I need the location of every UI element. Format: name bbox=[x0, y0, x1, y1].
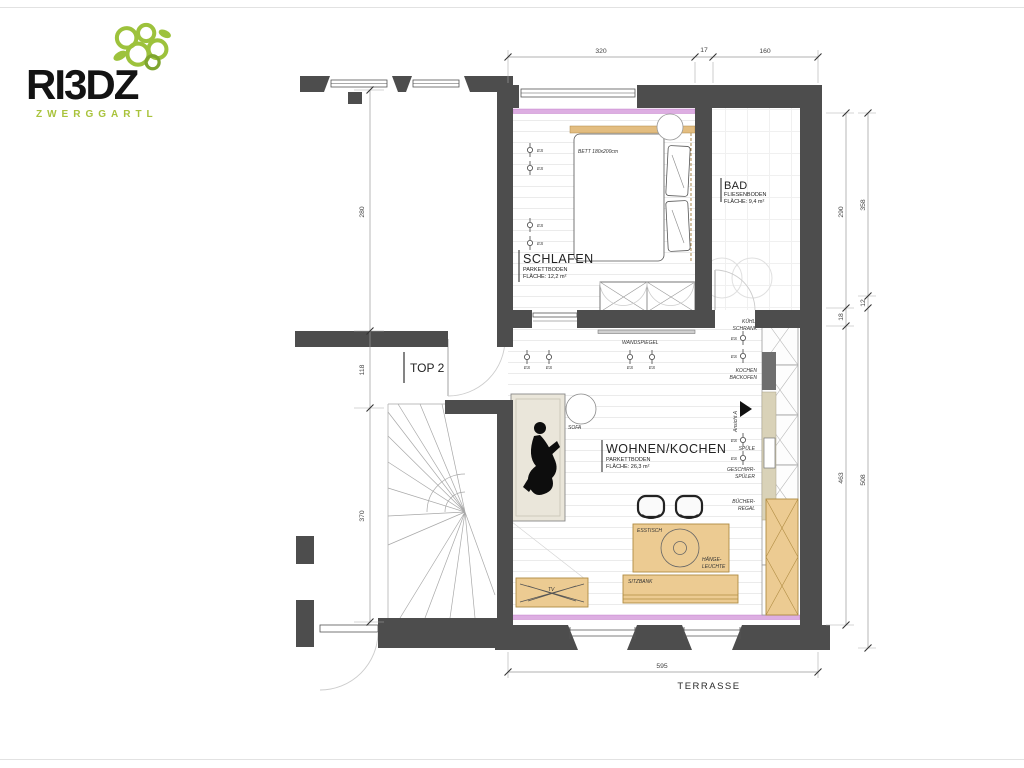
hanging-lamp-label-2: LEUCHTE bbox=[702, 564, 726, 570]
oven-label-2: BACKOFEN bbox=[729, 375, 757, 381]
dim-top-3: 160 bbox=[759, 48, 771, 55]
schlafen-name: SCHLAFEN bbox=[523, 252, 594, 266]
svg-text:ES: ES bbox=[546, 365, 553, 370]
svg-text:ES: ES bbox=[537, 148, 544, 153]
dim-right-inner-2: 18 bbox=[838, 313, 845, 321]
svg-text:ES: ES bbox=[524, 365, 531, 370]
dim-top-1: 320 bbox=[595, 48, 607, 55]
dim-right-inner-3: 463 bbox=[838, 472, 845, 484]
fridge-label-2: SCHRANK bbox=[733, 326, 758, 332]
svg-text:ES: ES bbox=[731, 438, 738, 443]
svg-text:ES: ES bbox=[731, 336, 738, 341]
dishwasher-label-2: SPÜLER bbox=[735, 473, 755, 480]
bookshelf-label-1: BÜCHER- bbox=[732, 498, 755, 505]
svg-text:ES: ES bbox=[537, 223, 544, 228]
schlafen-floor: PARKETTBODEN bbox=[523, 267, 568, 273]
staircase bbox=[388, 404, 495, 618]
sink-label: SPÜLE bbox=[739, 445, 756, 452]
tv-label: TV bbox=[548, 587, 555, 593]
terrasse-label: TERRASSE bbox=[677, 681, 740, 692]
bed-label: BETT 180x200cm bbox=[578, 149, 618, 155]
bench-label: SITZBANK bbox=[628, 579, 653, 585]
dim-right-outer-2: 12 bbox=[860, 299, 867, 307]
wohnen-area: FLÄCHE: 26,3 m² bbox=[606, 463, 650, 470]
dim-left-3: 370 bbox=[359, 510, 366, 522]
wall-mirror-label: WANDSPIEGEL bbox=[622, 340, 659, 346]
ceiling-lamp-icon bbox=[657, 114, 683, 140]
wardrobe bbox=[600, 282, 695, 312]
kitchen-unit-strip bbox=[762, 315, 798, 615]
oven-icon bbox=[762, 352, 776, 390]
bed: BETT 180x200cm bbox=[570, 114, 695, 262]
dim-left-1: 280 bbox=[359, 206, 366, 218]
floorplan-page: RI3DZ ZWERGGARTL bbox=[0, 0, 1024, 768]
bad-floor: FLIESENBODEN bbox=[724, 192, 767, 198]
svg-text:ES: ES bbox=[627, 365, 634, 370]
svg-text:ES: ES bbox=[537, 241, 544, 246]
svg-text:ES: ES bbox=[731, 354, 738, 359]
dining-table-label: ESSTISCH bbox=[637, 528, 662, 534]
svg-text:ES: ES bbox=[731, 456, 738, 461]
hanging-lamp-label-1: HÄNGE- bbox=[702, 556, 722, 563]
bad-name: BAD bbox=[724, 180, 748, 192]
dishwasher-label-1: GESCHIRR- bbox=[727, 467, 755, 473]
unit-label: TOP 2 bbox=[410, 361, 445, 375]
bookshelf-label-2: REGAL bbox=[738, 506, 755, 512]
section-marker-label: Ansicht A bbox=[733, 410, 739, 433]
floor-plan-drawing: BETT 180x200cm WANDSPIEGEL SOFA bbox=[0, 0, 1024, 768]
dim-top-2: 17 bbox=[700, 47, 708, 54]
svg-text:ES: ES bbox=[537, 166, 544, 171]
svg-text:ES: ES bbox=[649, 365, 656, 370]
bad-area: FLÄCHE: 9,4 m² bbox=[724, 198, 765, 205]
oven-label-1: KOCHEN bbox=[736, 368, 758, 374]
schlafen-area: FLÄCHE: 12,2 m² bbox=[523, 273, 567, 280]
tv-sideboard: TV bbox=[516, 578, 588, 607]
dim-right-outer-3: 508 bbox=[860, 474, 867, 486]
dim-right-outer-1: 358 bbox=[860, 199, 867, 211]
dim-left-2: 118 bbox=[359, 364, 366, 375]
dim-bottom-1: 595 bbox=[656, 663, 668, 670]
side-table bbox=[566, 394, 596, 424]
sofa-label: SOFA bbox=[568, 425, 582, 431]
bookshelf bbox=[766, 499, 798, 615]
dining-table: ESSTISCH HÄNGE- LEUCHTE bbox=[633, 524, 729, 572]
dim-right-inner-1: 290 bbox=[838, 206, 845, 218]
wohnen-floor: PARKETTBODEN bbox=[606, 457, 651, 463]
bench: SITZBANK bbox=[623, 575, 738, 603]
sink-icon bbox=[764, 438, 775, 468]
wohnen-name: WOHNEN/KOCHEN bbox=[606, 442, 726, 456]
